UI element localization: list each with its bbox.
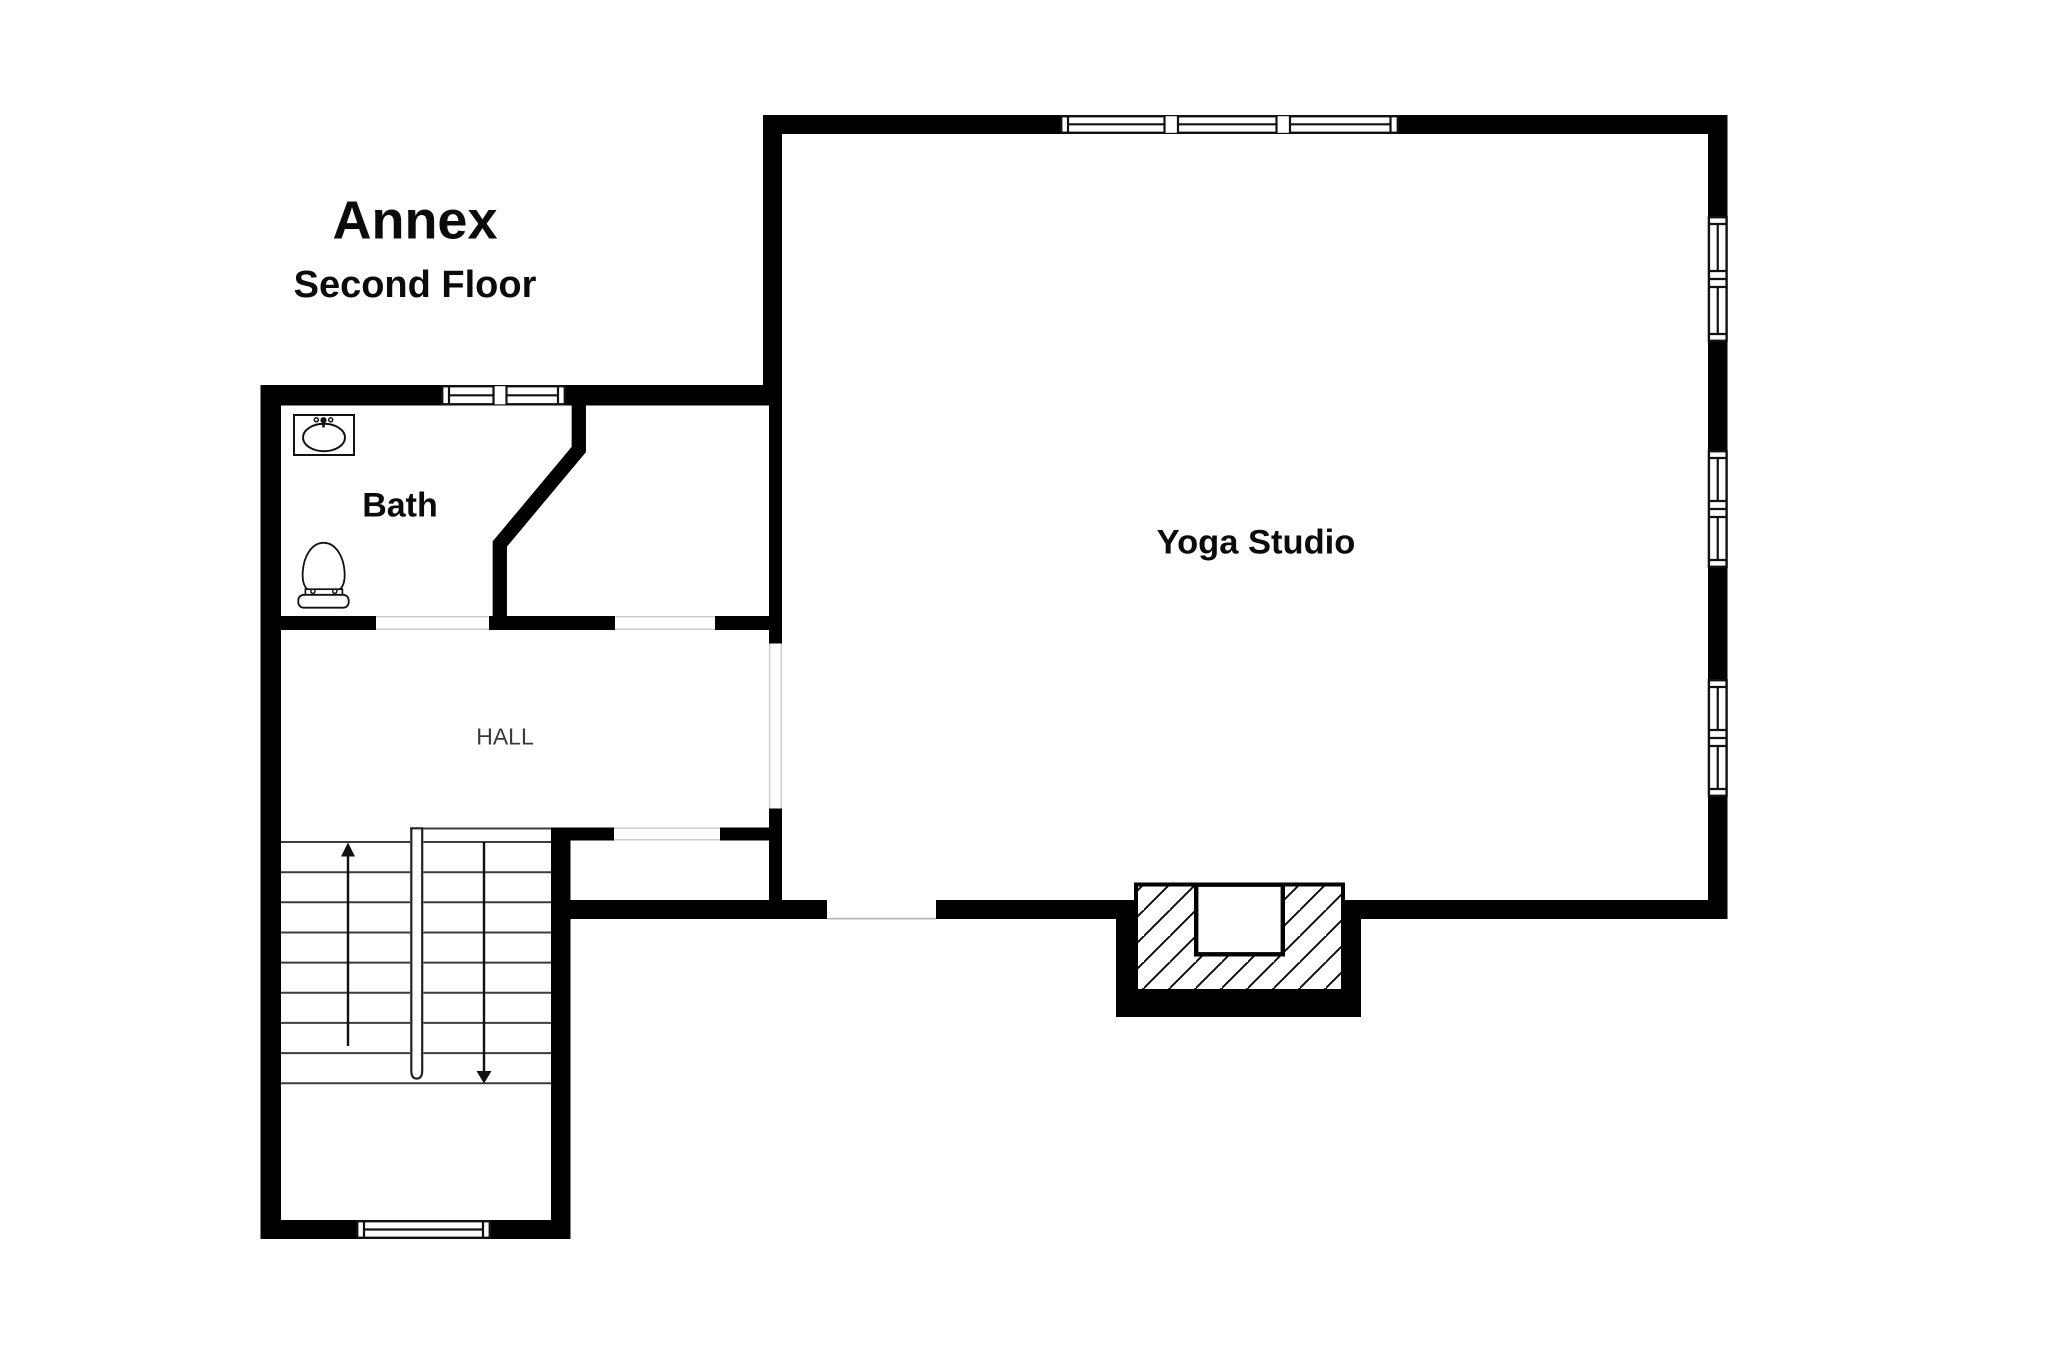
svg-text:Bath: Bath — [362, 487, 438, 525]
svg-text:HALL: HALL — [476, 724, 534, 750]
svg-text:Annex: Annex — [332, 191, 497, 251]
svg-text:Second Floor: Second Floor — [294, 264, 537, 306]
svg-text:Yoga Studio: Yoga Studio — [1157, 524, 1356, 562]
